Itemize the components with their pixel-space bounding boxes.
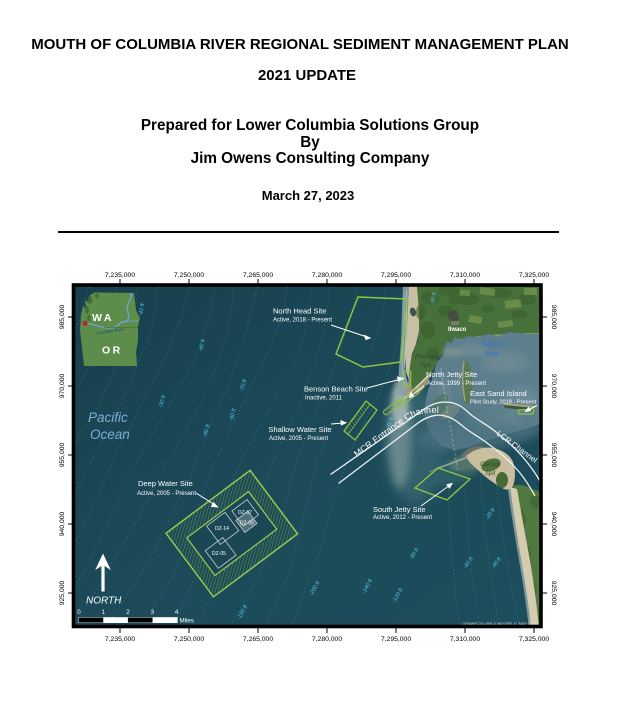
svg-text:985,000: 985,000 [550,305,557,330]
svg-text:7,250,000: 7,250,000 [174,272,204,279]
svg-text:955,000: 955,000 [550,443,557,468]
svg-text:North Head Site: North Head Site [273,307,326,316]
svg-text:7,325,000: 7,325,000 [519,636,549,643]
svg-text:7,295,000: 7,295,000 [381,636,411,643]
svg-text:955,000: 955,000 [59,443,66,468]
svg-text:940,000: 940,000 [550,512,557,537]
svg-text:Spit: Spit [420,363,431,369]
svg-text:2: 2 [126,609,130,616]
svg-text:7,265,000: 7,265,000 [243,636,273,643]
svg-text:DZ-08: DZ-08 [240,521,254,527]
svg-text:940,000: 940,000 [59,512,66,537]
svg-text:Active, 2005 - Present: Active, 2005 - Present [137,491,196,497]
svg-text:985,000: 985,000 [59,305,66,330]
svg-text:1: 1 [102,609,106,616]
svg-text:7,310,000: 7,310,000 [450,636,480,643]
svg-text:3: 3 [151,609,155,616]
svg-text:7,265,000: 7,265,000 [243,272,273,279]
svg-text:Bay: Bay [486,349,500,358]
svg-text:970,000: 970,000 [59,374,66,399]
svg-text:North Jetty Site: North Jetty Site [426,370,477,379]
svg-text:7,235,000: 7,235,000 [105,636,135,643]
svg-text:Pacific: Pacific [88,410,128,425]
svg-text:Benson Beach Site: Benson Beach Site [304,385,368,394]
svg-text:7,310,000: 7,310,000 [450,272,480,279]
svg-text:DZ-05: DZ-05 [212,551,226,557]
svg-text:DZ-14: DZ-14 [215,526,229,532]
svg-text:WA: WA [92,312,114,324]
svg-text:Active, 2005 - Present: Active, 2005 - Present [269,436,328,442]
svg-text:7,250,000: 7,250,000 [174,636,204,643]
svg-text:Pilot Study, 2018 - Present: Pilot Study, 2018 - Present [470,400,537,406]
svg-text:Active, 2018 - Present: Active, 2018 - Present [273,318,332,324]
svg-text:970,000: 970,000 [550,374,557,399]
svg-text:NORTH: NORTH [86,596,122,607]
svg-text:Ilwaco: Ilwaco [448,327,467,333]
svg-text:Inactive, 2011: Inactive, 2011 [305,396,343,402]
svg-text:Active, 2012 - Present: Active, 2012 - Present [373,515,432,521]
svg-text:South Jetty Site: South Jetty Site [373,505,426,514]
svg-text:Peacock: Peacock [415,355,439,361]
svg-text:7,280,000: 7,280,000 [312,636,342,643]
svg-text:7,280,000: 7,280,000 [312,272,342,279]
svg-text:Spit: Spit [485,471,496,477]
svg-text:7,325,000: 7,325,000 [519,272,549,279]
svg-text:7,235,000: 7,235,000 [105,272,135,279]
svg-text:Baker: Baker [482,339,502,348]
svg-text:East Sand Island: East Sand Island [470,389,527,398]
svg-text:0: 0 [77,609,81,616]
svg-text:4: 4 [175,609,179,616]
svg-text:Clatsop: Clatsop [480,462,501,468]
svg-text:Ocean: Ocean [90,427,130,442]
svg-text:DZ-07: DZ-07 [238,510,252,516]
svg-text:925,000: 925,000 [59,581,66,606]
svg-text:Active, 1999 - Present: Active, 1999 - Present [427,381,486,387]
svg-text:Shallow Water Site: Shallow Water Site [269,425,332,434]
svg-text:Deep Water Site: Deep Water Site [138,479,193,488]
svg-text:OR: OR [102,345,123,357]
svg-text:7,295,000: 7,295,000 [381,272,411,279]
svg-text:Miles: Miles [180,618,194,625]
svg-text:925,000: 925,000 [550,581,557,606]
